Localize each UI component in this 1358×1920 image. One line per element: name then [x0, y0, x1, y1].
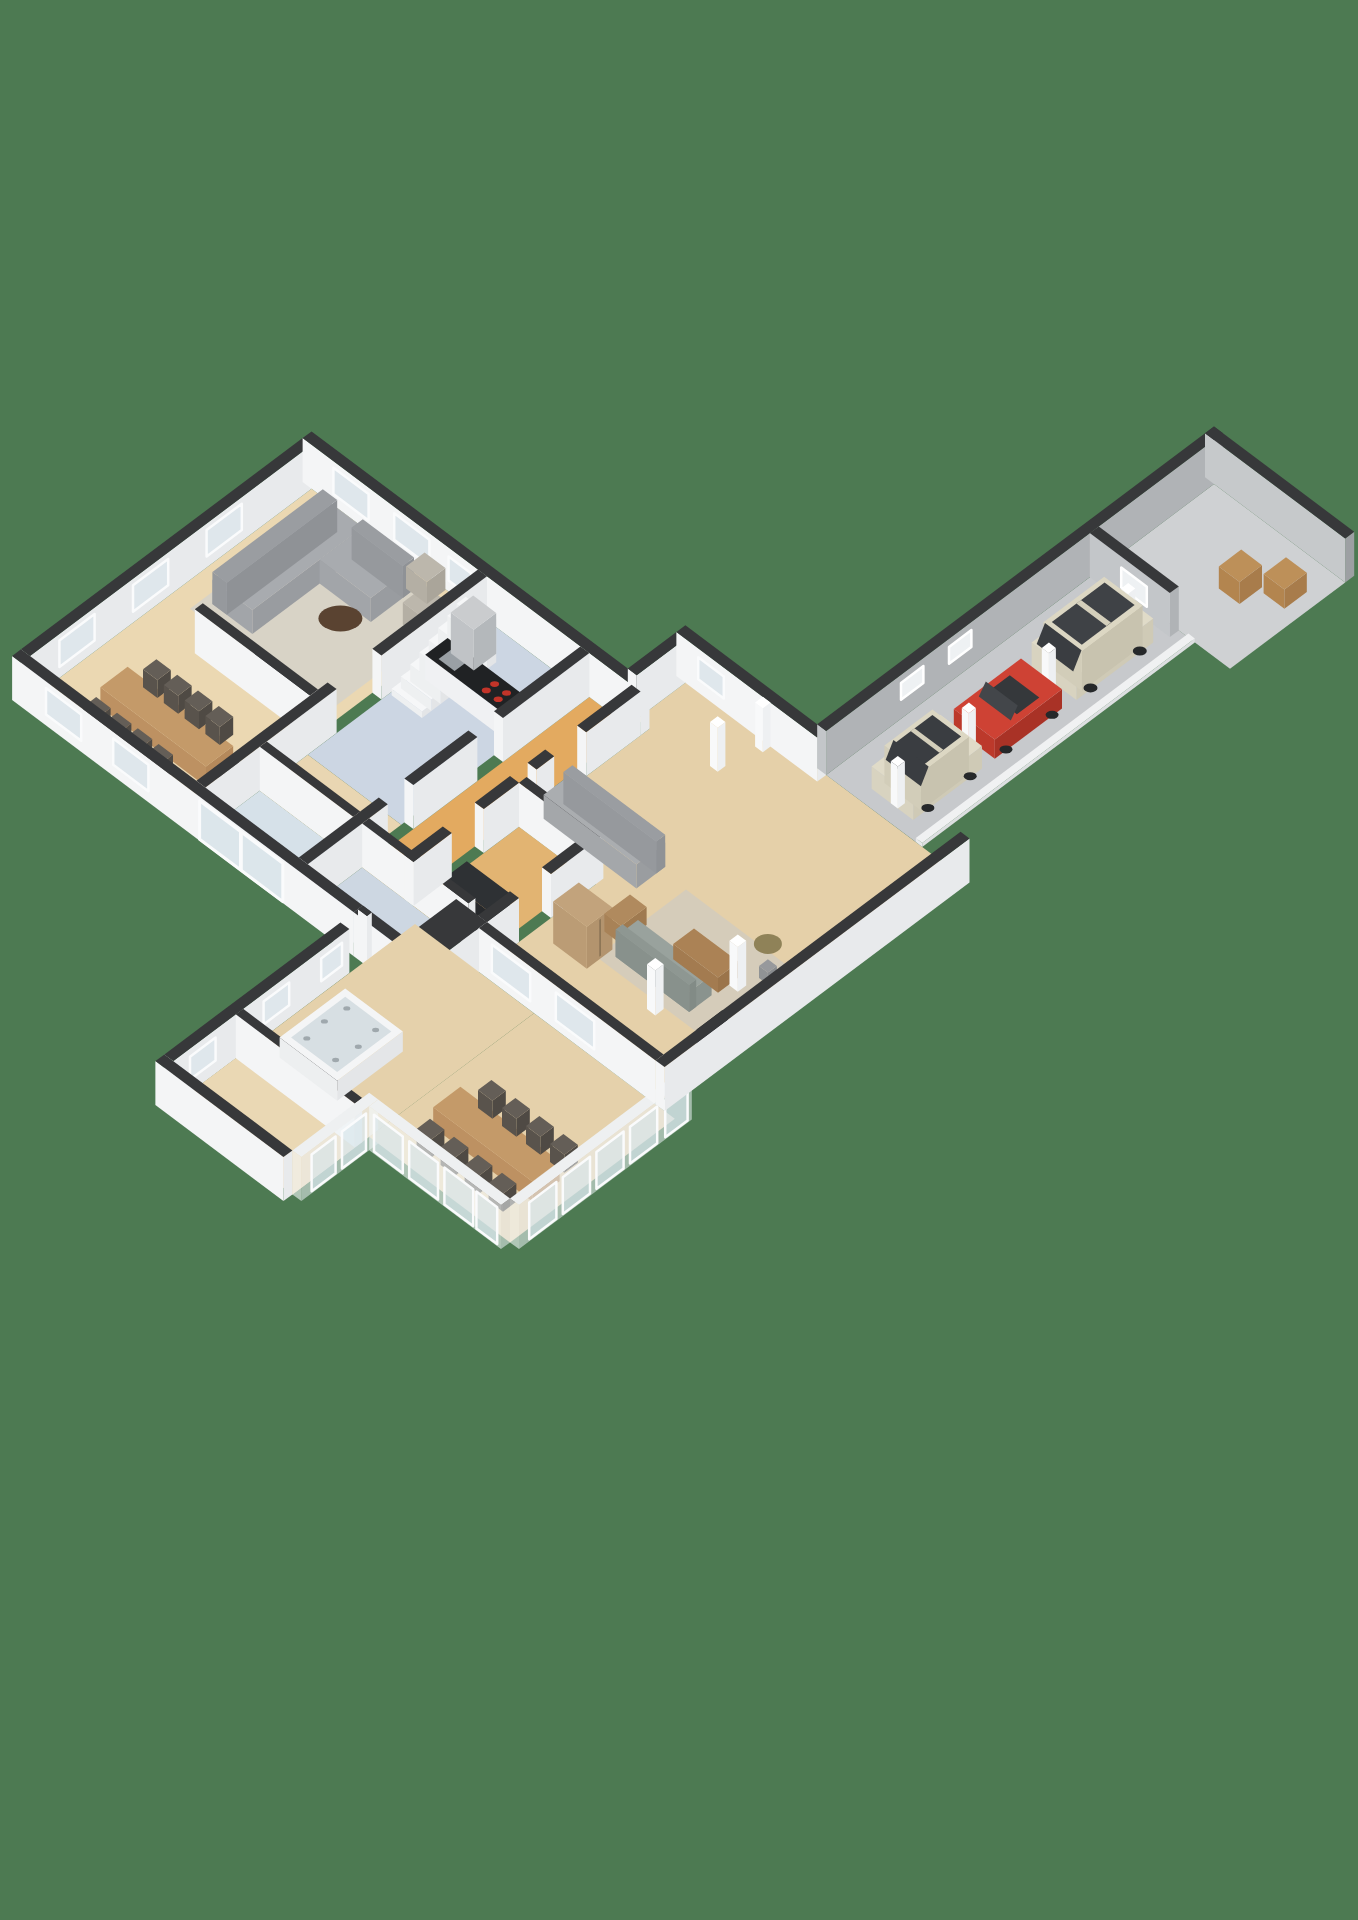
wall-wing-glass-se	[510, 1198, 519, 1249]
jacuzzi-jet	[321, 1019, 328, 1023]
wall-hall-se	[577, 726, 586, 777]
car-wheel	[964, 772, 977, 780]
jacuzzi-jet	[303, 1036, 310, 1040]
coffee-table-round	[318, 605, 362, 631]
wall-hall-se	[475, 802, 484, 853]
wall-living-se	[656, 1060, 665, 1111]
sofa-bench-back	[689, 980, 696, 1013]
wall-wing-nw	[358, 909, 367, 960]
jacuzzi-jet	[343, 1006, 350, 1010]
car-wheel	[1084, 683, 1098, 692]
car-wheel	[1046, 711, 1059, 719]
floorplan-svg	[0, 0, 1358, 1920]
sofa-living-back	[656, 835, 665, 874]
jacuzzi-jet	[332, 1058, 339, 1062]
wall-wing-se	[292, 1150, 301, 1201]
hob-burner	[490, 681, 499, 687]
wall-driveway	[817, 724, 826, 775]
driveway-post	[891, 761, 898, 808]
door-mullion	[239, 831, 243, 872]
column	[647, 964, 655, 1015]
jacuzzi-jet	[355, 1045, 362, 1049]
wall-hall-se	[404, 855, 413, 906]
wall-kitchen-nw	[372, 649, 381, 700]
wall-hall-nw	[404, 778, 413, 829]
floorplan-3d-view	[0, 0, 1358, 1920]
wall-storage-divider	[1170, 586, 1179, 637]
plant	[754, 934, 782, 954]
column	[738, 941, 746, 992]
wall-wing-nw	[367, 912, 372, 960]
column	[655, 964, 663, 1015]
hob-burner	[482, 688, 491, 694]
wardrobe-door-line	[599, 919, 601, 957]
wall-hall-nw	[494, 711, 503, 762]
wall-storage-ne	[1345, 532, 1354, 583]
jacuzzi-jet	[372, 1028, 379, 1032]
column	[718, 722, 726, 772]
driveway-post	[898, 761, 905, 808]
column	[730, 941, 738, 992]
column	[755, 703, 763, 753]
wall-wing-glass-sw	[501, 1198, 510, 1249]
hob-burner	[494, 696, 503, 702]
car-wheel	[921, 804, 934, 812]
hob-burner	[502, 690, 511, 696]
wall-bedroom-se	[542, 867, 551, 918]
column	[710, 722, 718, 772]
car-wheel	[1000, 745, 1013, 753]
column	[763, 703, 771, 753]
wall-wing-end	[283, 1150, 292, 1201]
car-wheel	[1133, 647, 1147, 656]
